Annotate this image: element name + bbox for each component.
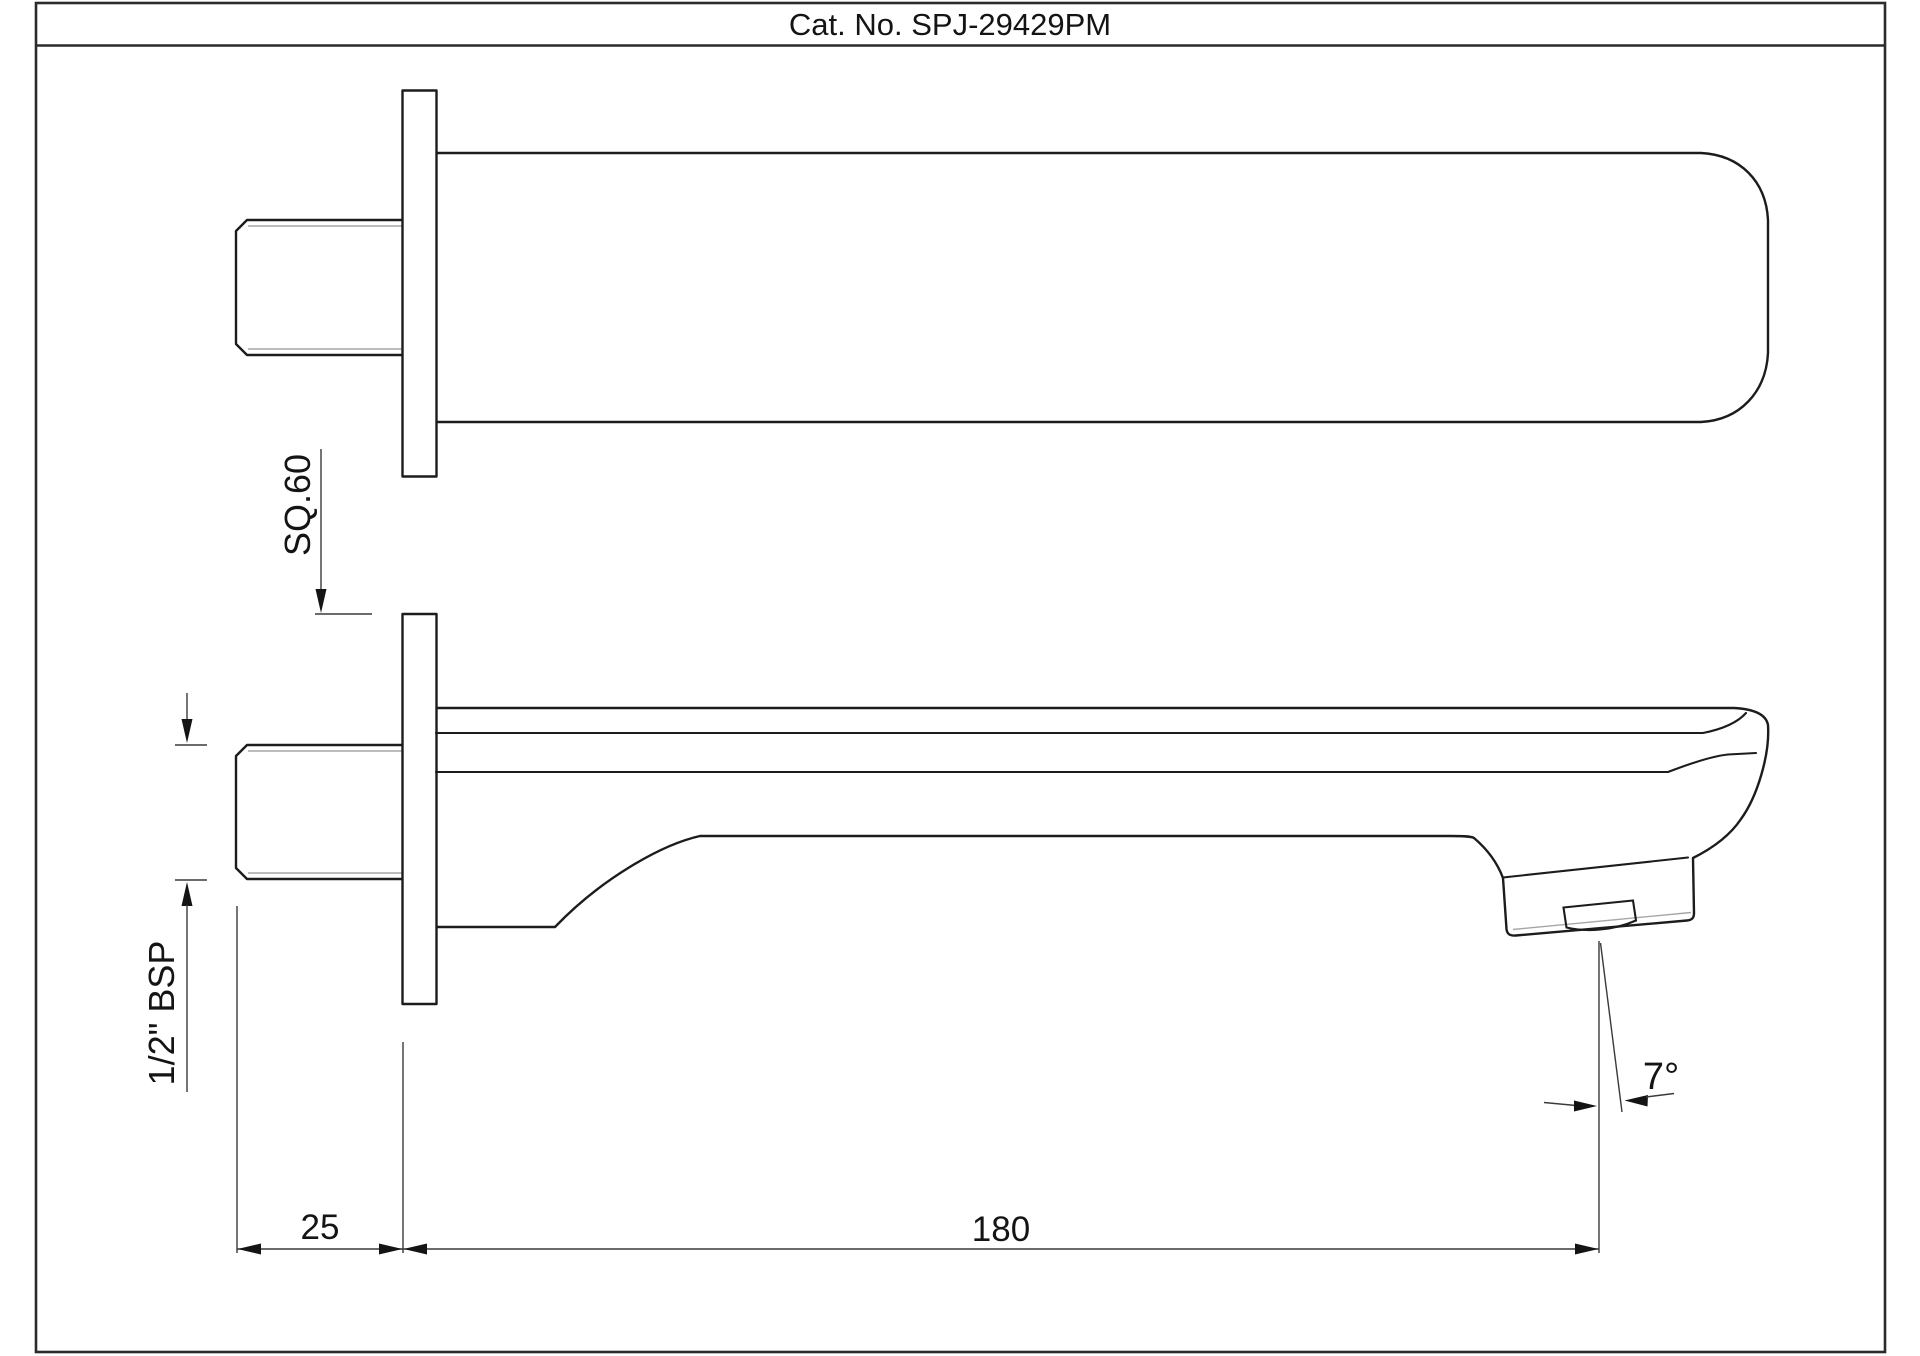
- spout-body-top-view: [436, 153, 1768, 422]
- dimension-text-spout-length: 180: [972, 1210, 1030, 1249]
- page-title: Cat. No. SPJ-29429PM: [789, 7, 1111, 42]
- angle-left-leader: [1544, 1103, 1576, 1106]
- side-view: [236, 614, 1768, 1004]
- dimension-text-spray-angle: 7°: [1643, 1056, 1679, 1098]
- dimension-flange-square: SQ.60: [277, 449, 372, 614]
- spout-body-side-view: [436, 708, 1768, 936]
- dimension-spray-angle: 7°: [1544, 943, 1679, 1112]
- dimension-text-wall-offset: 25: [301, 1208, 340, 1247]
- wall-flange-top-view: [403, 91, 437, 477]
- inlet-pipe-top-view: [236, 220, 403, 355]
- top-view: [236, 91, 1768, 477]
- drawing-sheet: Cat. No. SPJ-29429PM: [0, 0, 1920, 1356]
- arrowhead-180-left: [404, 1244, 428, 1255]
- sq60-arrowhead: [316, 589, 327, 613]
- spray-angle-slanted-line: [1601, 943, 1623, 1112]
- dimension-text-flange-square: SQ.60: [277, 454, 318, 556]
- dimension-thread: 1/2" BSP: [141, 693, 207, 1092]
- wall-flange-side-view: [403, 614, 437, 1004]
- thread-lower-arrowhead: [182, 882, 193, 906]
- dimension-text-thread: 1/2" BSP: [141, 941, 182, 1086]
- inlet-pipe-side-view: [236, 745, 403, 879]
- arrowhead-25-right: [379, 1244, 403, 1255]
- angle-left-arrowhead: [1574, 1101, 1597, 1112]
- thread-upper-arrowhead: [182, 719, 193, 743]
- arrowhead-25-left: [238, 1244, 262, 1255]
- arrowhead-180-right: [1575, 1244, 1599, 1255]
- dimension-spout-length: 180: [403, 941, 1599, 1255]
- dimension-wall-offset: 25: [237, 906, 403, 1255]
